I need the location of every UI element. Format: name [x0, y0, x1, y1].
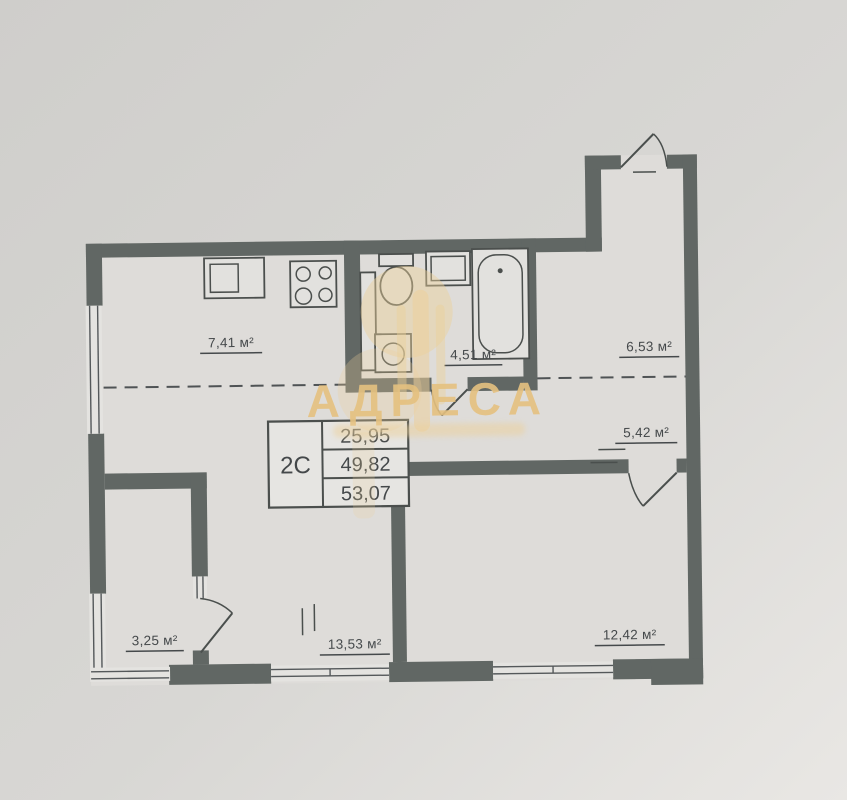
bathtub-icon — [472, 248, 529, 359]
window-balcony-left — [89, 594, 106, 678]
room-area-label-bathroom: 4,51 м² — [450, 347, 496, 363]
room-area-label-balcony: 3,25 м² — [132, 633, 178, 649]
room-area-label-bedroom: 12,42 м² — [603, 627, 657, 643]
watermark-subtext-blur — [333, 422, 525, 437]
room-area-label-corridor: 5,42 м² — [623, 425, 669, 441]
window-bedroom-bottom — [493, 661, 613, 678]
window-balcony-inner — [193, 576, 207, 598]
watermark-brand-text: АДРЕСА — [306, 372, 549, 427]
window-living-bottom — [271, 664, 389, 681]
floor-plan-photo: 7,41 м² 4,51 м² 6,53 м² 5,42 м² 3,25 м² … — [0, 0, 847, 800]
stove-icon — [290, 261, 337, 308]
window-balcony-bottom — [90, 667, 170, 682]
unit-type-label: 2С — [280, 452, 311, 479]
room-area-label-living: 13,53 м² — [328, 636, 382, 652]
kitchen-sink-icon — [204, 258, 264, 299]
room-area-label-kitchen: 7,41 м² — [208, 335, 254, 351]
room-area-label-hall: 6,53 м² — [626, 339, 672, 355]
window-left-upper — [86, 306, 104, 434]
floor-plan-svg: 7,41 м² 4,51 м² 6,53 м² 5,42 м² 3,25 м² … — [0, 0, 847, 800]
